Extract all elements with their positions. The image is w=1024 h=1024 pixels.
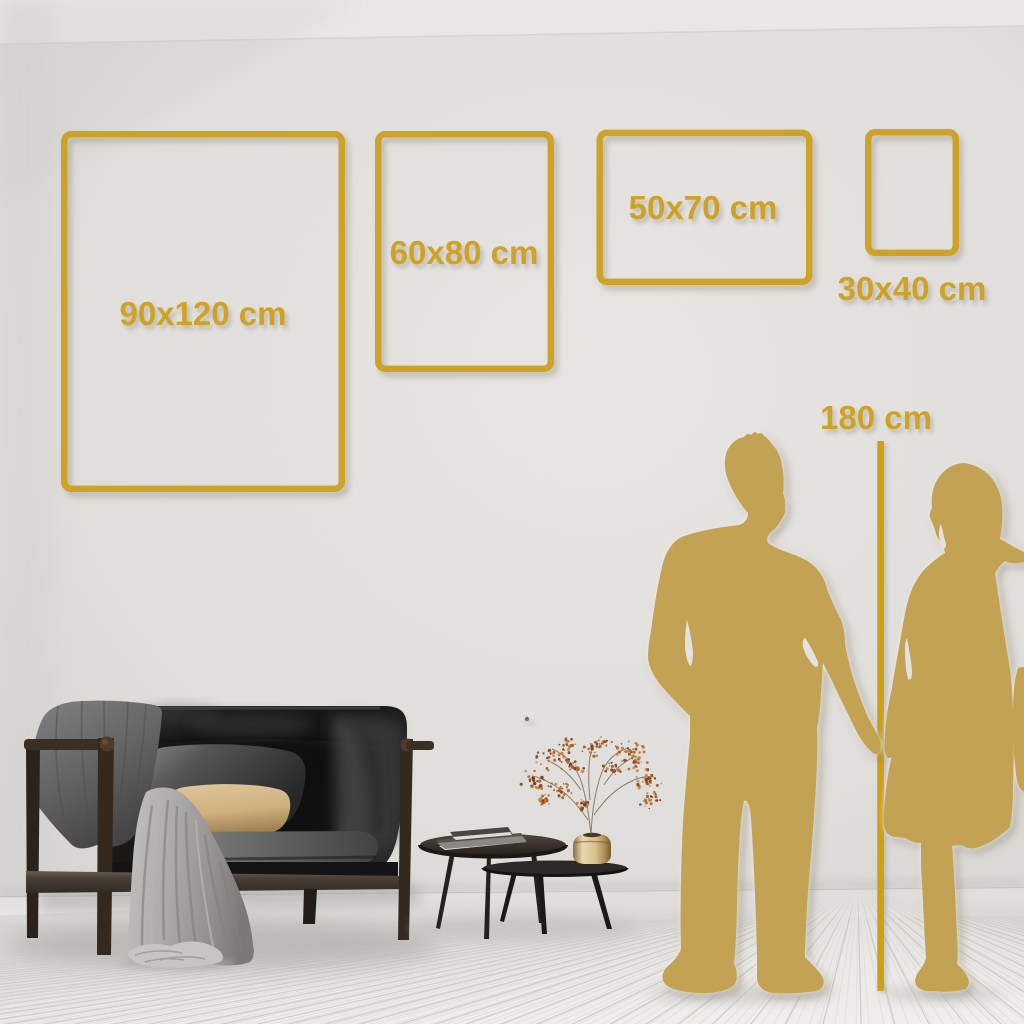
- svg-text:180 cm: 180 cm: [820, 399, 932, 436]
- svg-text:90x120 cm: 90x120 cm: [120, 295, 287, 332]
- svg-text:60x80 cm: 60x80 cm: [390, 234, 539, 271]
- svg-text:30x40 cm: 30x40 cm: [838, 270, 987, 307]
- svg-text:50x70 cm: 50x70 cm: [629, 189, 778, 226]
